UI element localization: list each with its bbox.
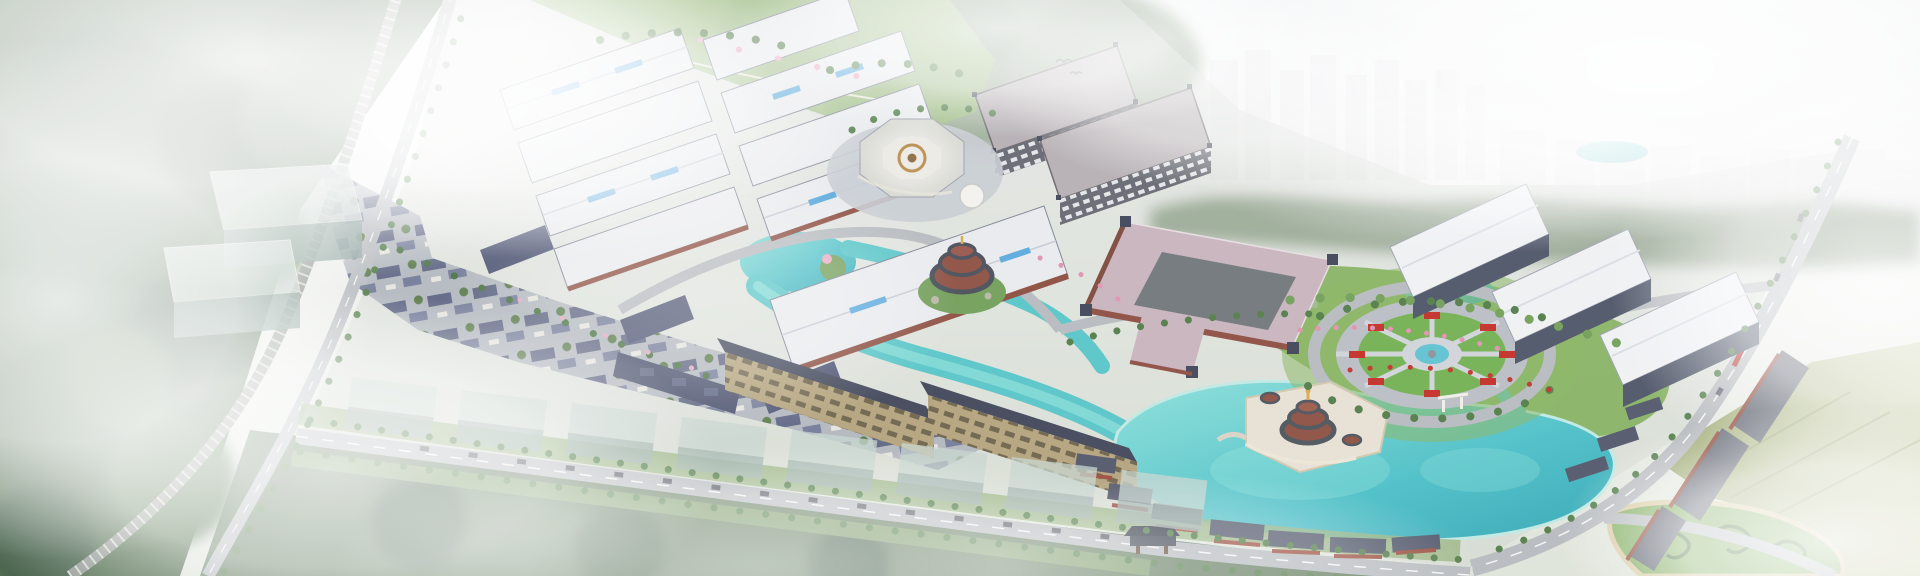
atmosphere-veil	[0, 0, 1920, 576]
mist-layers	[0, 0, 1920, 576]
master-plan-canvas	[0, 0, 1920, 576]
aerial-rendering	[0, 0, 1920, 576]
